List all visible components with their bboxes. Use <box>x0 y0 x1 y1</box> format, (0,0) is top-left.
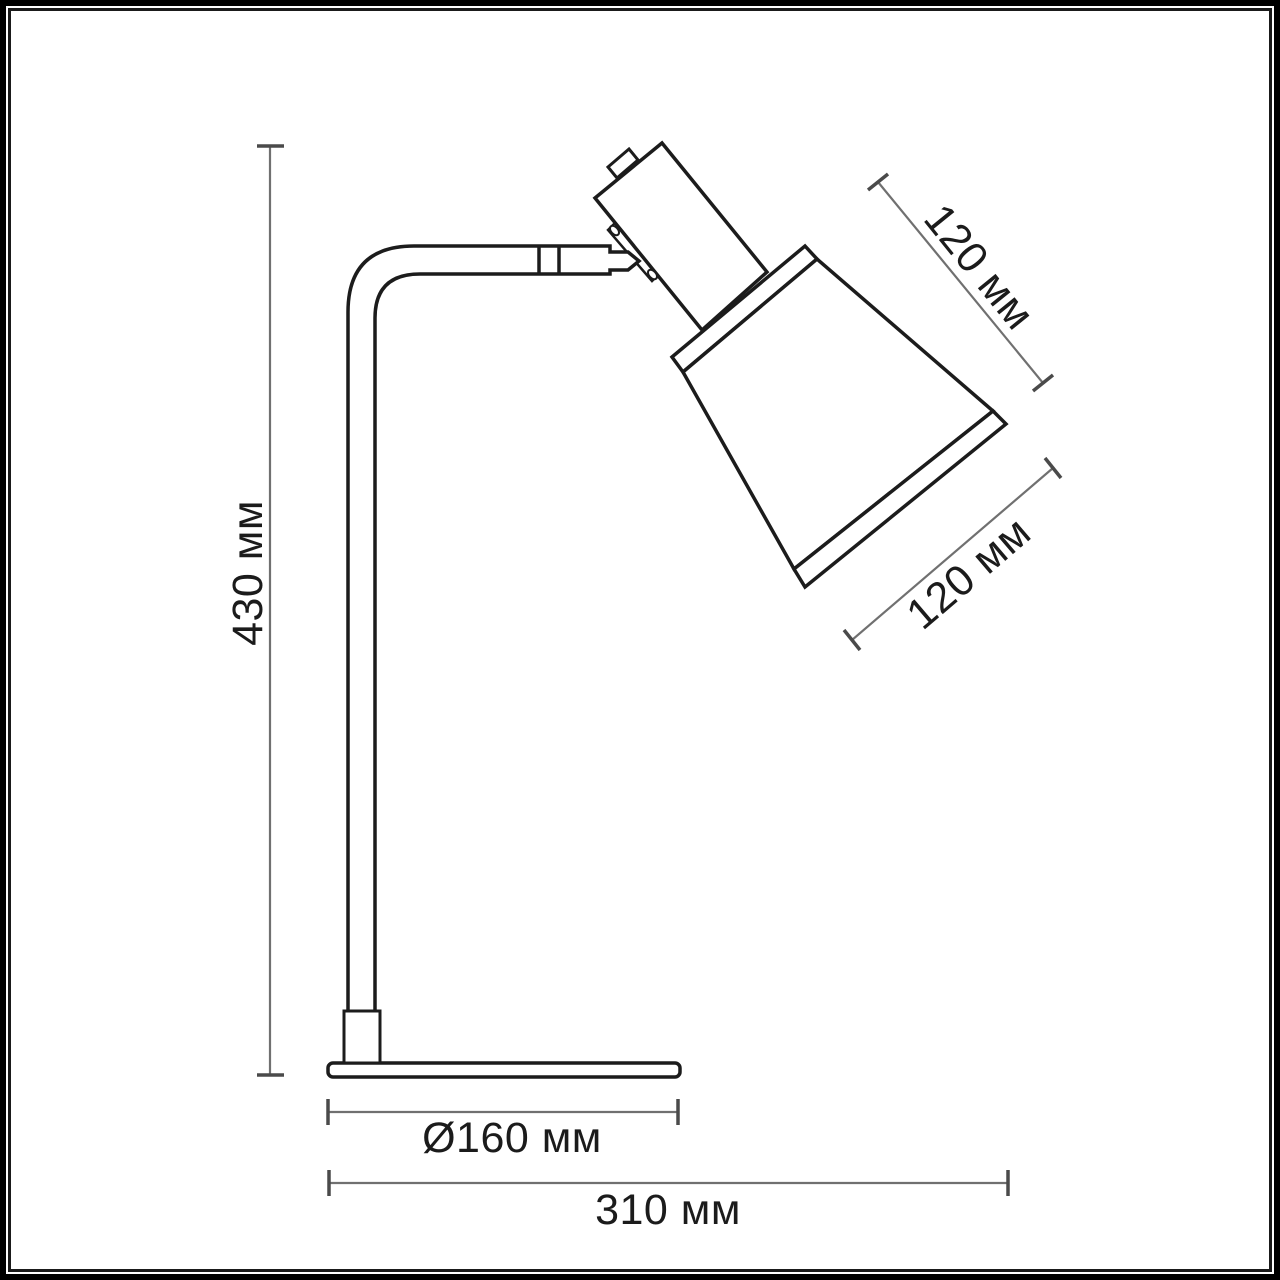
dimension-base-diameter-label: Ø160 мм <box>422 1114 602 1162</box>
dimension-shade-opening-label: 120 мм <box>898 508 1040 639</box>
lamp-dimension-diagram: 430 мм 120 мм 120 мм Ø160 мм <box>0 0 1280 1280</box>
dimension-height-label: 430 мм <box>224 500 272 646</box>
dimension-height: 430 мм <box>224 146 284 1075</box>
dimension-shade-side-label: 120 мм <box>914 195 1043 339</box>
dimension-shade-side-tick-top <box>868 174 888 190</box>
lamp-base <box>328 1063 680 1077</box>
dimension-shade-side-tick-bottom <box>1033 375 1053 391</box>
lamp-pole-arm <box>348 246 639 1012</box>
diagram-canvas: 430 мм 120 мм 120 мм Ø160 мм <box>0 0 1280 1280</box>
dimension-overall-depth-label: 310 мм <box>595 1186 741 1234</box>
dimension-base-diameter: Ø160 мм <box>328 1099 678 1162</box>
base-collar <box>344 1011 380 1063</box>
dimension-shade-opening-tick-left <box>844 630 860 650</box>
dimension-overall-depth: 310 мм <box>329 1170 1008 1234</box>
dimension-shade-opening-tick-right <box>1045 458 1061 478</box>
